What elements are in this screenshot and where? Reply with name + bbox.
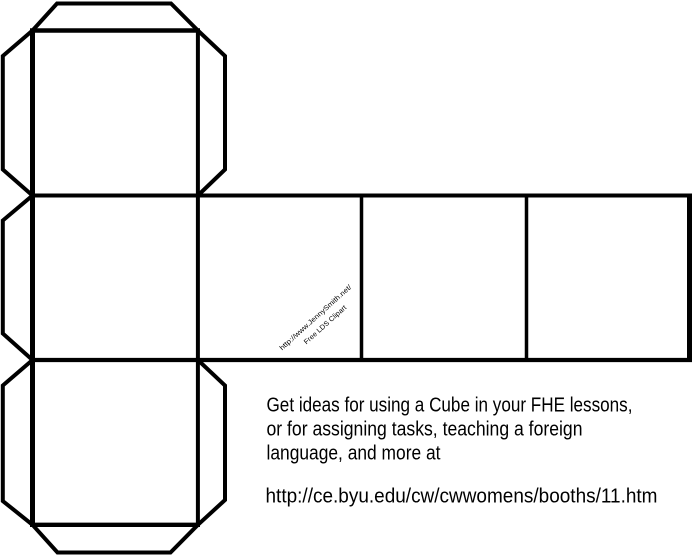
svg-text:Get ideas for using a Cube in: Get ideas for using a Cube in your FHE l… (267, 395, 633, 417)
svg-text:http://ce.byu.edu/cw/cwwomens/: http://ce.byu.edu/cw/cwwomens/booths/11.… (266, 486, 658, 508)
svg-text:language, and more at: language, and more at (267, 443, 441, 465)
svg-text:or for assigning tasks, teachi: or for assigning tasks, teaching a forei… (267, 419, 583, 441)
